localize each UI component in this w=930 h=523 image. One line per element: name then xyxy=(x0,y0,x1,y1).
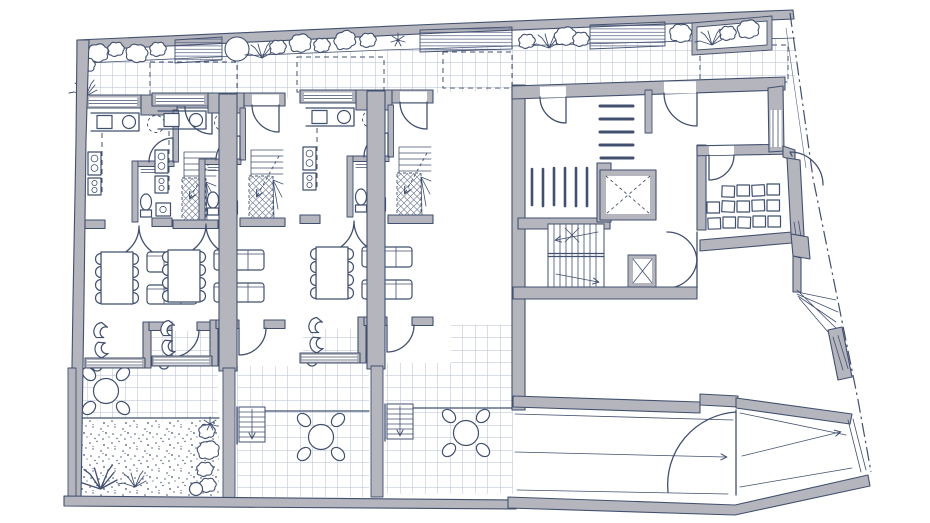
locker-room-wall-south xyxy=(700,232,792,251)
core-entry-door-swing xyxy=(540,97,566,123)
planting-bed-hatch-1 xyxy=(175,37,222,63)
elevator xyxy=(600,170,656,220)
bike-rack-bars xyxy=(532,168,587,206)
hall-wall-south xyxy=(513,287,697,299)
party-wall-2 xyxy=(367,91,385,369)
locker-storage-room xyxy=(700,184,792,251)
floor-plan-scan xyxy=(0,0,930,523)
planting-bed-hatch-2 xyxy=(420,27,512,52)
hall-south-diagonal xyxy=(736,398,852,424)
louver-fan xyxy=(797,290,840,332)
common-core xyxy=(508,77,870,515)
stairhall-door-swing-2 xyxy=(667,258,697,288)
ramp-south-wall xyxy=(508,475,870,515)
core-west-wall xyxy=(512,85,525,410)
round-tree xyxy=(225,37,249,61)
garden-unit-1 xyxy=(75,417,219,497)
stairwell xyxy=(548,224,604,288)
terrace-wall-left xyxy=(68,368,76,499)
stone xyxy=(190,483,203,496)
planting-bed-hatch-3 xyxy=(590,22,665,49)
locker-squares xyxy=(707,184,781,229)
party-wall-1 xyxy=(219,94,237,371)
planter-box xyxy=(692,16,772,55)
ramp-arrow-2 xyxy=(742,432,840,456)
outer-wall-bottom-left xyxy=(64,496,516,509)
terrace-steps-unit-3 xyxy=(387,404,413,439)
boundary-offset-line xyxy=(786,28,806,168)
mailbox-bars xyxy=(600,106,633,158)
stairhall-door-swing-1 xyxy=(667,232,697,262)
terrace-steps-unit-2 xyxy=(239,407,265,442)
large-hall xyxy=(513,394,852,424)
entrance-hall xyxy=(600,90,652,158)
ramp-arrow-1 xyxy=(515,452,726,457)
unit-terraces xyxy=(75,325,513,497)
driveway-ramp xyxy=(508,410,870,515)
locker-room-door-swing xyxy=(709,155,734,180)
hall-south-jog xyxy=(700,394,738,407)
terrace-wall-1 xyxy=(223,368,235,499)
bike-storage xyxy=(518,163,611,229)
floor-plan-svg xyxy=(0,0,930,523)
terrace-wall-2 xyxy=(371,366,383,497)
hall-south-wall xyxy=(513,396,700,413)
service-shaft xyxy=(628,255,656,287)
upper-room-door-swing xyxy=(664,93,697,126)
unit-1 xyxy=(85,95,218,371)
gate-swing xyxy=(668,410,736,495)
